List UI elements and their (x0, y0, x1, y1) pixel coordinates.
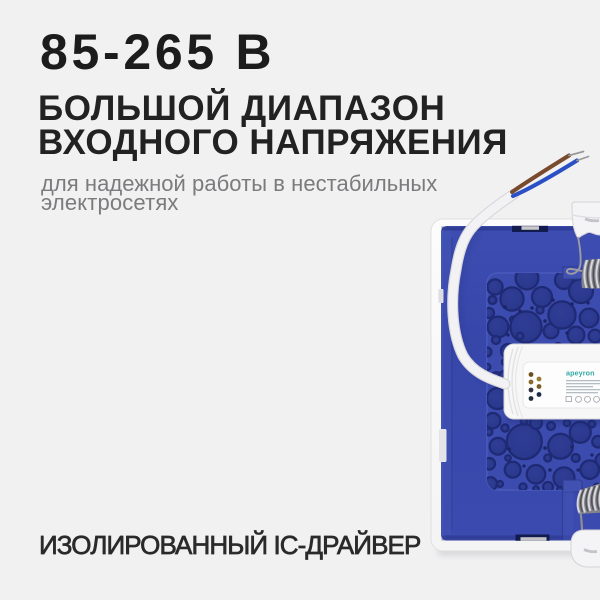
svg-text:apeyron: apeyron (566, 369, 595, 378)
